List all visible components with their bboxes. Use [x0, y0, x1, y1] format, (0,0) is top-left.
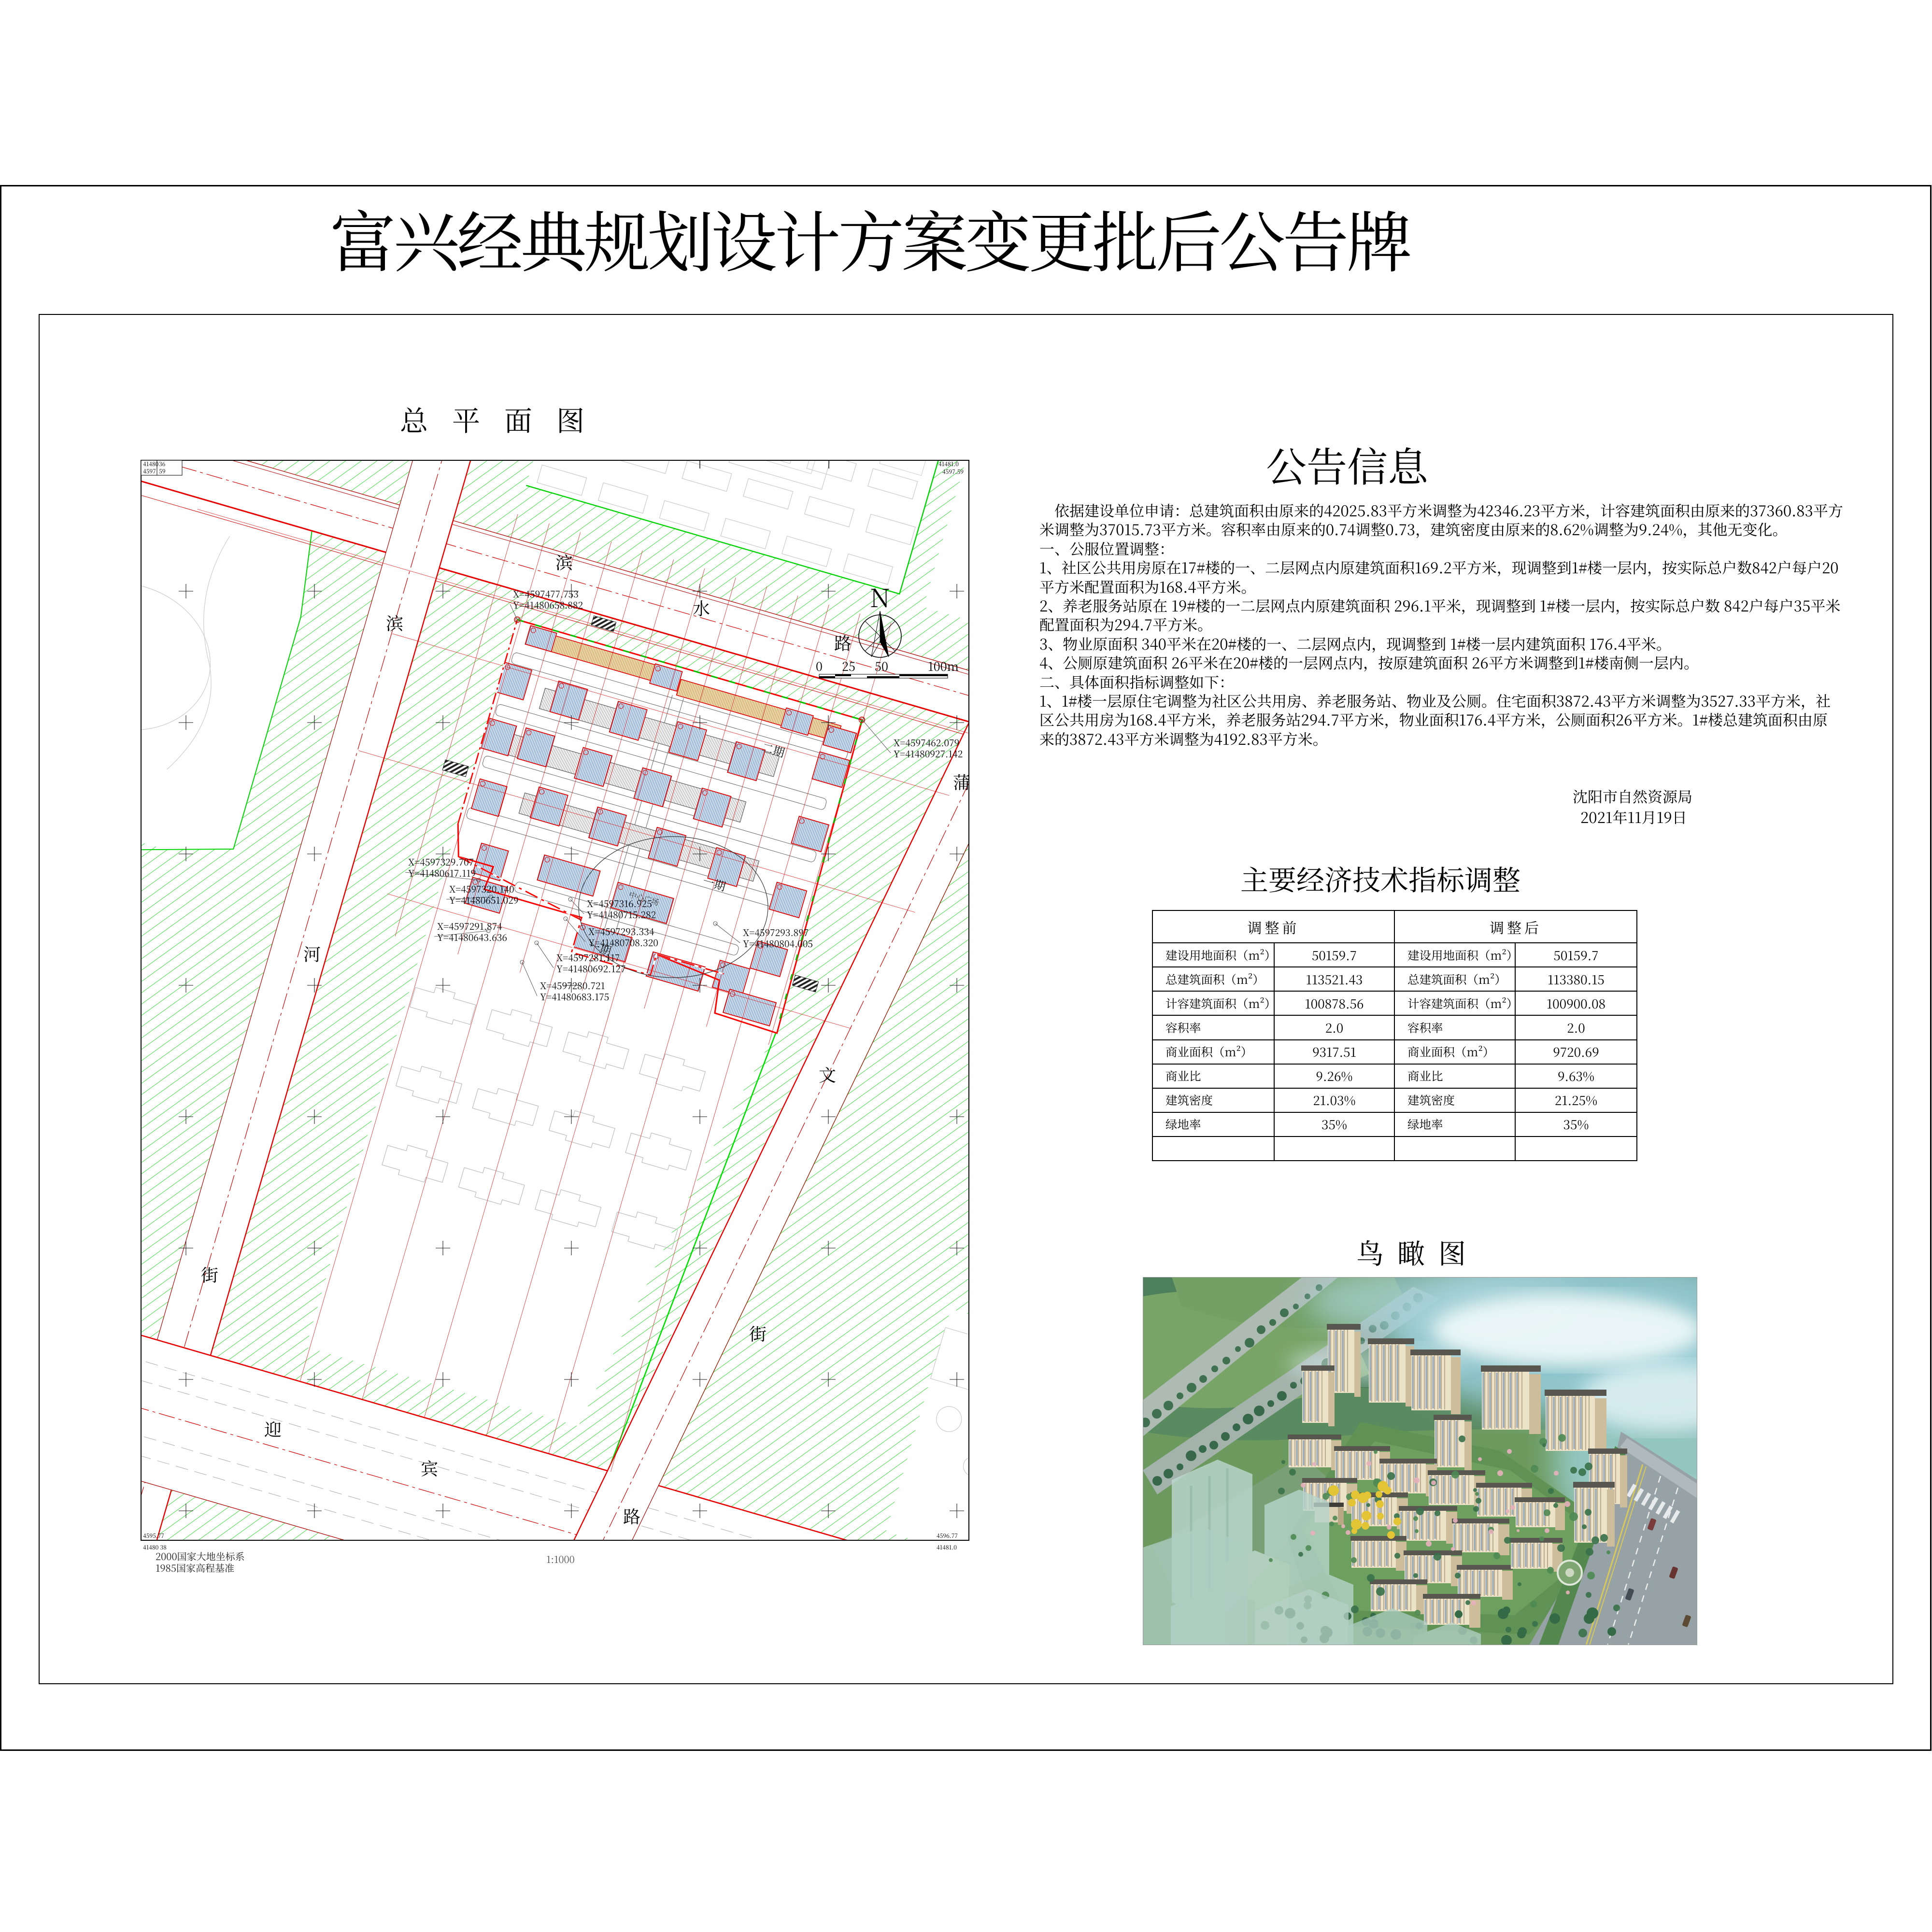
svg-text:滨: 滨	[555, 550, 573, 574]
svg-text:4595.77: 4595.77	[143, 1532, 164, 1540]
svg-text:Y=41480643.636: Y=41480643.636	[437, 931, 507, 944]
svg-text:59: 59	[159, 467, 166, 475]
svg-text:Y=41480658.882: Y=41480658.882	[513, 598, 583, 611]
svg-text:宾: 宾	[421, 1456, 438, 1480]
svg-text:Y=41480617.119: Y=41480617.119	[408, 867, 476, 880]
svg-text:蒲: 蒲	[953, 769, 969, 794]
svg-text:Y=41480683.175: Y=41480683.175	[540, 990, 609, 1003]
svg-text:1:1000: 1:1000	[546, 1552, 575, 1566]
svg-text:Y=41480692.127: Y=41480692.127	[556, 962, 625, 975]
svg-text:文: 文	[819, 1062, 836, 1087]
svg-text:街: 街	[749, 1321, 767, 1346]
svg-text:0: 0	[816, 657, 823, 675]
svg-text:100m: 100m	[928, 657, 959, 675]
svg-text:4596.77: 4596.77	[937, 1532, 958, 1540]
svg-text:河: 河	[303, 941, 321, 966]
svg-text:Y=41480804.005: Y=41480804.005	[743, 937, 813, 950]
svg-text:50: 50	[875, 657, 888, 675]
svg-text:迎: 迎	[264, 1417, 282, 1441]
svg-text:路: 路	[834, 630, 852, 655]
svg-text:街: 街	[201, 1262, 218, 1287]
svg-text:4597.59: 4597.59	[942, 468, 964, 476]
svg-text:41481.0: 41481.0	[937, 1543, 957, 1551]
svg-text:1985国家高程基准: 1985国家高程基准	[156, 1561, 234, 1575]
svg-text:Y=41480715.282: Y=41480715.282	[587, 908, 656, 921]
svg-text:路: 路	[623, 1504, 640, 1528]
svg-text:Y=41480651.029: Y=41480651.029	[449, 894, 519, 907]
svg-text:41481.0: 41481.0	[938, 460, 959, 468]
svg-text:Y=41480927.142: Y=41480927.142	[894, 747, 963, 760]
svg-text:Y=41480708.320: Y=41480708.320	[588, 936, 658, 949]
svg-text:水: 水	[693, 596, 710, 620]
svg-text:N: N	[870, 578, 890, 614]
svg-text:25: 25	[842, 657, 855, 675]
svg-text:4597: 4597	[143, 467, 156, 475]
svg-text:滨: 滨	[386, 611, 403, 635]
